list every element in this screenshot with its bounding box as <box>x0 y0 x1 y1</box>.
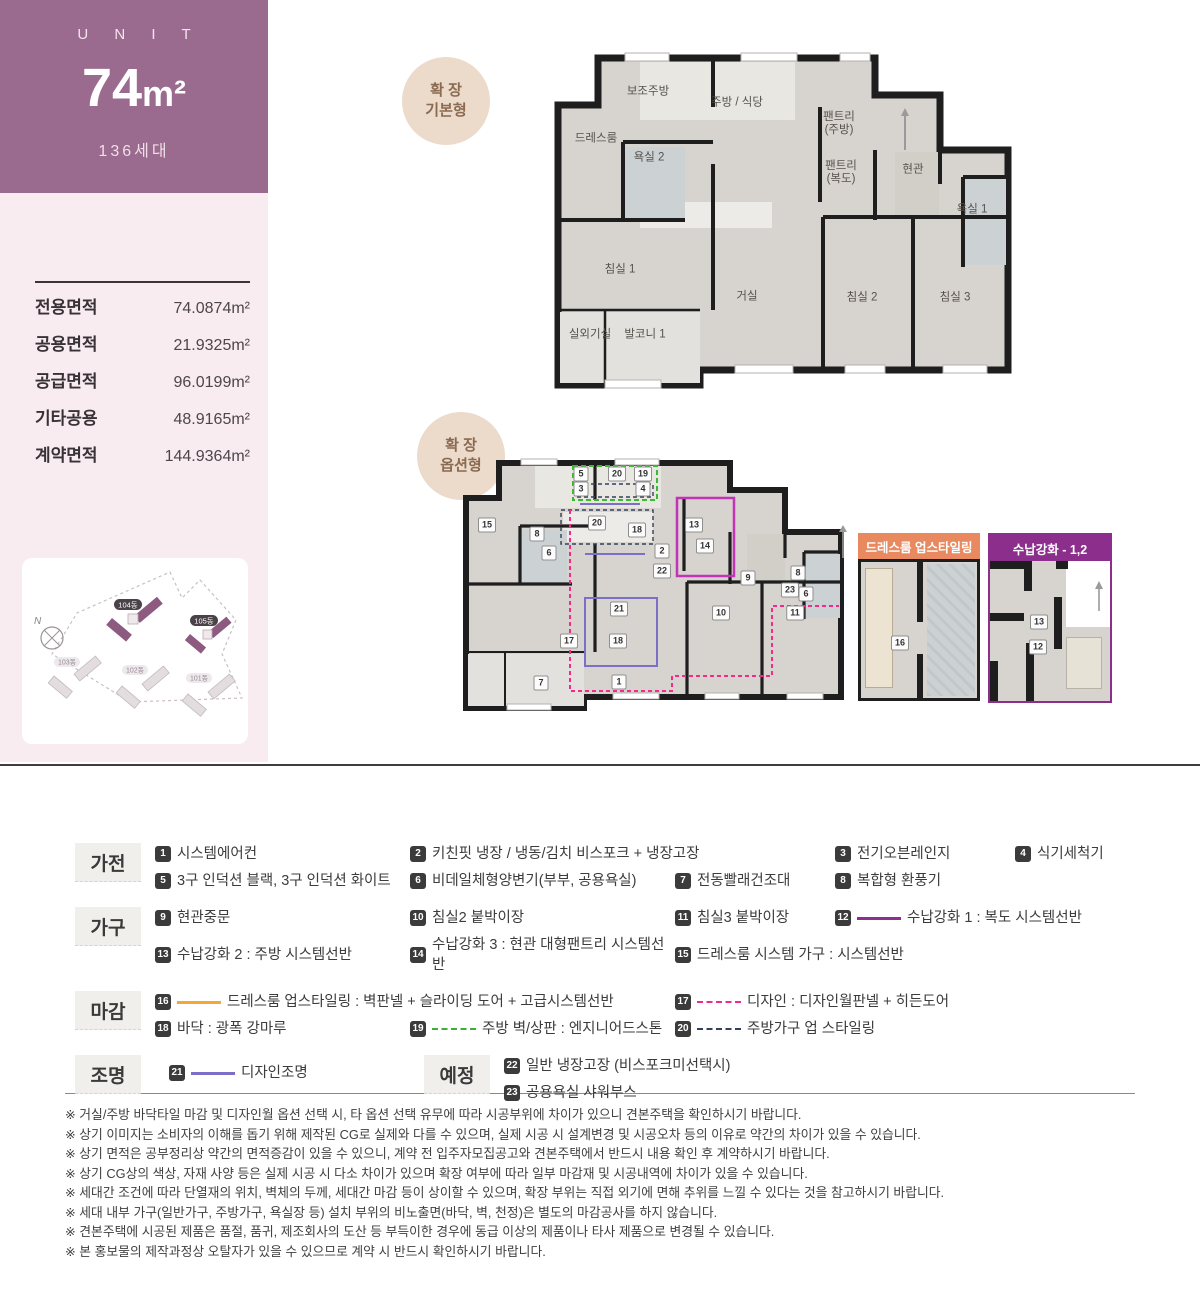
legend-item: 1시스템에어컨 <box>155 844 410 864</box>
option-marker: 5 <box>574 467 589 482</box>
site-plan-map: N 104동 105동 <box>22 558 248 744</box>
legend-item: 18바닥 : 광폭 강마루 <box>155 1019 410 1039</box>
svg-text:104동: 104동 <box>118 601 138 610</box>
wardrobe-shelves <box>865 568 893 688</box>
option-marker: 11 <box>786 606 804 621</box>
legend-row-lighting: 조명 21디자인조명 예정 22일반 냉장고장 (비스포크미선택시) 23공용욕… <box>75 1055 1147 1103</box>
detail-panel-title: 수납강화 - 1,2 <box>990 535 1110 561</box>
option-marker: 20 <box>608 467 626 482</box>
room-label: 침실 3 <box>940 292 971 305</box>
room-label: 주방 / 식당 <box>711 97 763 110</box>
area-value: 96.0199m² <box>174 374 251 392</box>
footnote: ※ 본 홍보물의 제작과정상 오탈자가 있을 수 있으므로 계약 시 반드시 확… <box>65 1245 1150 1260</box>
option-marker: 1 <box>612 675 627 690</box>
floor-plan-option: 5 20 19 3 4 15 8 6 20 18 2 22 13 14 9 8 … <box>455 458 847 713</box>
legend-item: 13수납강화 2 : 주방 시스템선반 <box>155 935 410 975</box>
room-label: 욕실 2 <box>634 152 665 165</box>
legend-item: 2키친핏 냉장 / 냉동/김치 비스포크 + 냉장고장 <box>410 844 835 864</box>
svg-text:101동: 101동 <box>190 675 209 683</box>
compass-icon: N <box>34 616 63 649</box>
legend-item: 9현관중문 <box>155 908 410 928</box>
option-marker: 17 <box>560 634 578 649</box>
section-divider <box>0 764 1200 766</box>
option-marker: 13 <box>1030 615 1048 630</box>
footnote: ※ 상기 면적은 공부정리상 약간의 면적증감이 있을 수 있으니, 계약 전 … <box>65 1147 1150 1162</box>
option-marker: 3 <box>574 482 589 497</box>
room-label: 욕실 1 <box>957 204 988 217</box>
area-row: 공용면적21.9325m² <box>35 330 250 367</box>
legend-item: 10침실2 붙박이장 <box>410 908 675 928</box>
area-label: 전용면적 <box>35 293 98 318</box>
room-label: 현관 <box>902 164 923 177</box>
option-marker: 16 <box>891 636 909 651</box>
option-marker: 15 <box>478 518 496 533</box>
unit-size-number: 74 <box>82 58 142 118</box>
line-swatch <box>857 917 901 920</box>
line-swatch <box>191 1072 235 1075</box>
entrance-arrow-icon <box>1092 579 1106 613</box>
legend-item: 16드레스룸 업스타일링 : 벽판넬 + 슬라이딩 도어 + 고급시스템선반 <box>155 992 675 1012</box>
legend-row-appliances: 가전 1시스템에어컨 2키친핏 냉장 / 냉동/김치 비스포크 + 냉장고장 3… <box>75 843 1147 891</box>
area-label: 기타공용 <box>35 404 98 429</box>
option-marker: 12 <box>1029 640 1047 655</box>
footnote: ※ 상기 이미지는 소비자의 이해를 돕기 위해 제작된 CG로 실제와 다를 … <box>65 1128 1150 1143</box>
brochure-page: U N I T 74m² 136세대 전용면적74.0874m² 공용면적21.… <box>0 0 1200 1294</box>
footnote: ※ 견본주택에 시공된 제품은 품절, 품귀, 제조회사의 도산 등 부득이한 … <box>65 1225 1150 1240</box>
room-label: 발코니 1 <box>624 329 665 342</box>
room-label: 보조주방 <box>627 86 669 99</box>
area-value: 21.9325m² <box>174 337 251 355</box>
area-label: 공급면적 <box>35 367 98 392</box>
option-marker: 22 <box>653 564 671 579</box>
option-marker: 2 <box>655 544 670 559</box>
footnote: ※ 상기 CG상의 색상, 자재 사양 등은 실제 시공 시 다소 차이가 있으… <box>65 1167 1150 1182</box>
option-marker: 20 <box>588 516 606 531</box>
room-label: 팬트리 (주방) <box>823 111 855 137</box>
option-marker: 9 <box>741 571 756 586</box>
option-marker: 13 <box>685 518 703 533</box>
option-marker: 8 <box>791 566 806 581</box>
floor-plan-basic-drawing <box>545 52 1015 392</box>
legend-item: 11침실3 붙박이장 <box>675 908 835 928</box>
option-marker: 6 <box>542 546 557 561</box>
footnote: ※ 세대 내부 가구(일반가구, 주방가구, 욕실장 등) 설치 부위의 비노출… <box>65 1206 1150 1221</box>
unit-word: U N I T <box>0 26 268 43</box>
site-plan: N 104동 105동 <box>22 558 248 744</box>
legend-item: 53구 인덕션 블랙, 3구 인덕션 화이트 <box>155 871 410 891</box>
sidebar: U N I T 74m² 136세대 전용면적74.0874m² 공용면적21.… <box>0 0 268 762</box>
legend-item: 3전기오븐레인지 <box>835 844 1015 864</box>
footnote: ※ 거실/주방 바닥타일 마감 및 디자인월 옵션 선택 시, 타 옵션 선택 … <box>65 1108 1150 1123</box>
legend-item: 8복합형 환풍기 <box>835 871 1015 891</box>
unit-households: 136세대 <box>0 137 268 161</box>
footnotes: ※ 거실/주방 바닥타일 마감 및 디자인월 옵션 선택 시, 타 옵션 선택 … <box>65 1108 1150 1264</box>
area-label: 계약면적 <box>35 441 98 466</box>
legend-item: 12수납강화 1 : 복도 시스템선반 <box>835 908 1137 928</box>
legend-planned-badge: 예정 <box>424 1055 490 1094</box>
area-value: 48.9165m² <box>174 411 251 429</box>
svg-text:N: N <box>34 616 42 627</box>
area-row: 공급면적96.0199m² <box>35 367 250 404</box>
area-value: 144.9364m² <box>165 448 250 466</box>
floor-plan-basic: 보조주방 주방 / 식당 드레스룸 욕실 2 팬트리 (주방) 현관 팬트리 (… <box>545 52 1015 392</box>
unit-size-unit: m² <box>142 73 186 114</box>
option-marker: 21 <box>610 602 628 617</box>
legend-item: 14수납강화 3 : 현관 대형팬트리 시스템선반 <box>410 935 675 975</box>
area-row: 기타공용48.9165m² <box>35 404 250 441</box>
tiled-area <box>927 564 975 696</box>
area-row: 계약면적144.9364m² <box>35 441 250 478</box>
detail-panel-plan: 16 <box>858 559 980 701</box>
legend-item: 20주방가구 업 스타일링 <box>675 1019 1137 1039</box>
legend-row-furniture: 가구 9현관중문 10침실2 붙박이장 11침실3 붙박이장 12수납강화 1 … <box>75 907 1147 975</box>
svg-text:103동: 103동 <box>58 659 77 667</box>
option-marker: 4 <box>636 482 651 497</box>
room-label: 침실 1 <box>605 264 636 277</box>
footnote: ※ 세대간 조건에 따라 단열재의 위치, 벽체의 두께, 세대간 마감 등이 … <box>65 1186 1150 1201</box>
line-swatch <box>177 1001 221 1004</box>
room-label: 팬트리 (복도) <box>825 160 857 186</box>
area-label: 공용면적 <box>35 330 98 355</box>
detail-panel-plan: 13 12 <box>990 561 1110 701</box>
legend-item: 17디자인 : 디자인월판넬 + 히든도어 <box>675 992 1137 1012</box>
svg-text:105동: 105동 <box>194 617 214 626</box>
legend-category-badge: 마감 <box>75 991 141 1030</box>
legend-item: 19주방 벽/상판 : 엔지니어드스톤 <box>410 1019 675 1039</box>
option-marker: 19 <box>634 467 652 482</box>
room-label: 드레스룸 <box>575 133 617 146</box>
legend-item: 7전동빨래건조대 <box>675 871 835 891</box>
legend-item: 6비데일체형양변기(부부, 공용욕실) <box>410 871 675 891</box>
line-swatch <box>432 1028 476 1030</box>
area-row: 전용면적74.0874m² <box>35 293 250 330</box>
option-marker: 7 <box>534 676 549 691</box>
option-marker: 23 <box>781 583 799 598</box>
legend-row-finishes: 마감 16드레스룸 업스타일링 : 벽판넬 + 슬라이딩 도어 + 고급시스템선… <box>75 991 1147 1039</box>
detail-panel-title: 드레스룸 업스타일링 <box>858 533 980 559</box>
option-marker: 6 <box>799 587 814 602</box>
legend-item: 23공용욕실 샤워부스 <box>504 1083 730 1103</box>
area-value: 74.0874m² <box>174 300 251 318</box>
area-table: 전용면적74.0874m² 공용면적21.9325m² 공급면적96.0199m… <box>35 281 250 478</box>
legend-category-badge: 가구 <box>75 907 141 946</box>
unit-size: 74m² <box>0 61 268 121</box>
room-label: 실외기실 <box>569 329 611 342</box>
detail-panel-storage: 수납강화 - 1,2 13 12 <box>988 533 1112 703</box>
line-swatch <box>697 1028 741 1030</box>
plan-basic-badge: 확 장 기본형 <box>402 57 490 145</box>
option-marker: 14 <box>696 539 714 554</box>
legend-item: 22일반 냉장고장 (비스포크미선택시) <box>504 1056 730 1076</box>
line-swatch <box>697 1001 741 1003</box>
legend-item: 15드레스룸 시스템 가구 : 시스템선반 <box>675 935 1015 975</box>
option-marker: 18 <box>609 634 627 649</box>
detail-panel-dressroom: 드레스룸 업스타일링 16 <box>858 533 980 701</box>
room-label: 침실 2 <box>847 292 878 305</box>
option-marker: 10 <box>712 606 730 621</box>
legend-item: 21디자인조명 <box>169 1063 424 1083</box>
legend-category-badge: 조명 <box>75 1055 141 1094</box>
room-label: 거실 <box>736 291 757 304</box>
legend: 가전 1시스템에어컨 2키친핏 냉장 / 냉동/김치 비스포크 + 냉장고장 3… <box>75 843 1147 1103</box>
legend-item: 4식기세척기 <box>1015 844 1137 864</box>
unit-header-block: U N I T 74m² 136세대 <box>0 0 268 193</box>
svg-text:102동: 102동 <box>126 667 145 675</box>
option-marker: 18 <box>628 523 646 538</box>
option-marker: 8 <box>530 527 545 542</box>
legend-category-badge: 가전 <box>75 843 141 882</box>
